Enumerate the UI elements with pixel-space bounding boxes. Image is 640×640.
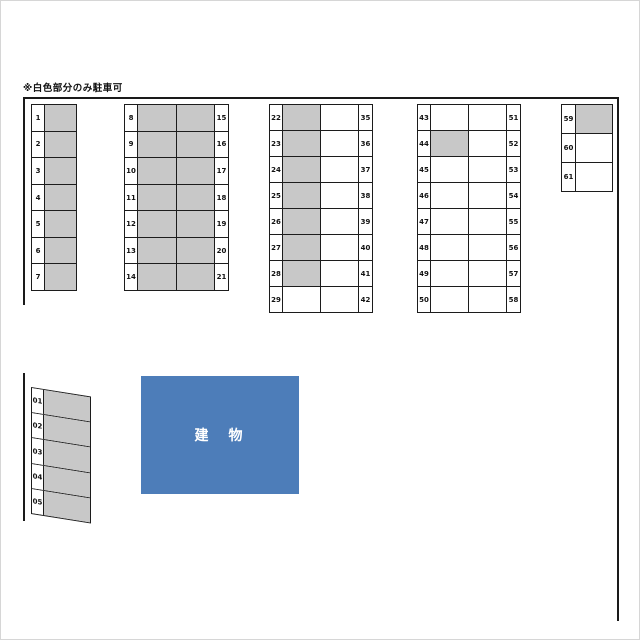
lot-boundary-left-upper <box>23 97 25 305</box>
space-number-label: 40 <box>359 235 372 260</box>
parking-map: ※白色部分のみ駐車可 1234567 815916101711181219132… <box>0 0 640 640</box>
space-row: 2 <box>32 132 76 159</box>
parking-space-unavailable <box>138 211 177 237</box>
space-number-label: 17 <box>215 158 228 184</box>
space-row: 6 <box>32 238 76 265</box>
space-number-label: 38 <box>359 183 372 208</box>
parking-space-available <box>321 157 359 182</box>
lot-boundary-left-lower <box>23 373 25 521</box>
parking-space-available <box>431 105 469 130</box>
parking-space-available <box>469 131 507 156</box>
space-number-label: 53 <box>507 157 520 182</box>
parking-space-unavailable <box>45 238 76 264</box>
space-number-label: 5 <box>32 211 45 237</box>
space-number-label: 56 <box>507 235 520 260</box>
parking-space-unavailable <box>177 185 216 211</box>
space-row: 5 <box>32 211 76 238</box>
space-number-label: 7 <box>32 264 45 290</box>
parking-space-available <box>431 157 469 182</box>
space-number-label: 44 <box>418 131 431 156</box>
space-row: 1017 <box>125 158 228 185</box>
parking-space-unavailable <box>138 158 177 184</box>
space-row: 2841 <box>270 261 372 287</box>
space-number-label: 26 <box>270 209 283 234</box>
parking-space-available <box>321 209 359 234</box>
space-number-label: 61 <box>562 163 576 191</box>
space-row: 916 <box>125 132 228 159</box>
space-number-label: 14 <box>125 264 138 290</box>
parking-space-unavailable <box>177 264 216 290</box>
space-number-label: 27 <box>270 235 283 260</box>
parking-space-available <box>469 209 507 234</box>
space-number-label: 57 <box>507 261 520 286</box>
space-number-label: 13 <box>125 238 138 264</box>
lot-boundary-top <box>23 97 619 99</box>
building-label: 建 物 <box>195 425 246 445</box>
space-row: 815 <box>125 105 228 132</box>
parking-space-available <box>321 183 359 208</box>
space-number-label: 25 <box>270 183 283 208</box>
space-number-label: 28 <box>270 261 283 286</box>
space-row: 2538 <box>270 183 372 209</box>
space-number-label: 16 <box>215 132 228 158</box>
parking-space-unavailable <box>283 183 321 208</box>
parking-block-1: 1234567 <box>31 104 77 291</box>
parking-block-5: 596061 <box>561 104 613 192</box>
parking-space-unavailable <box>177 238 216 264</box>
space-row: 59 <box>562 105 612 134</box>
space-row: 1320 <box>125 238 228 265</box>
space-row: 4957 <box>418 261 520 287</box>
space-number-label: 43 <box>418 105 431 130</box>
parking-space-unavailable <box>45 105 76 131</box>
space-row: 5058 <box>418 287 520 312</box>
parking-space-available <box>576 163 612 191</box>
space-number-label: 3 <box>32 158 45 184</box>
space-row: 3 <box>32 158 76 185</box>
space-row: 4351 <box>418 105 520 131</box>
space-row: 1118 <box>125 185 228 212</box>
space-number-label: 48 <box>418 235 431 260</box>
parking-block-2: 81591610171118121913201421 <box>124 104 229 291</box>
space-row: 2639 <box>270 209 372 235</box>
space-row: 61 <box>562 163 612 191</box>
space-number-label: 36 <box>359 131 372 156</box>
space-row: 7 <box>32 264 76 290</box>
space-number-label: 05 <box>32 489 44 515</box>
space-number-label: 35 <box>359 105 372 130</box>
parking-space-unavailable <box>138 132 177 158</box>
parking-space-unavailable <box>283 105 321 130</box>
space-number-label: 24 <box>270 157 283 182</box>
parking-space-unavailable <box>45 132 76 158</box>
space-row: 4553 <box>418 157 520 183</box>
parking-space-available <box>469 287 507 312</box>
space-number-label: 41 <box>359 261 372 286</box>
space-row: 4856 <box>418 235 520 261</box>
parking-space-unavailable <box>177 158 216 184</box>
parking-space-available <box>321 105 359 130</box>
space-number-label: 9 <box>125 132 138 158</box>
parking-space-available <box>469 183 507 208</box>
parking-space-unavailable <box>138 264 177 290</box>
space-number-label: 60 <box>562 134 576 162</box>
parking-space-unavailable <box>283 209 321 234</box>
parking-space-available <box>469 261 507 286</box>
parking-block-4: 43514452455346544755485649575058 <box>417 104 521 313</box>
space-number-label: 45 <box>418 157 431 182</box>
space-number-label: 02 <box>32 413 44 439</box>
space-number-label: 6 <box>32 238 45 264</box>
space-number-label: 19 <box>215 211 228 237</box>
parking-space-available <box>431 183 469 208</box>
parking-space-available <box>321 235 359 260</box>
space-number-label: 58 <box>507 287 520 312</box>
parking-space-unavailable <box>45 158 76 184</box>
parking-space-available <box>469 157 507 182</box>
space-number-label: 01 <box>32 388 44 414</box>
parking-space-unavailable <box>138 238 177 264</box>
space-row: 1219 <box>125 211 228 238</box>
space-row: 60 <box>562 134 612 163</box>
parking-space-available <box>321 261 359 286</box>
parking-space-available <box>321 131 359 156</box>
space-number-label: 4 <box>32 185 45 211</box>
space-row: 2942 <box>270 287 372 312</box>
parking-space-unavailable <box>283 235 321 260</box>
lot-boundary-right <box>617 97 619 621</box>
space-number-label: 37 <box>359 157 372 182</box>
space-number-label: 10 <box>125 158 138 184</box>
building: 建 物 <box>141 376 299 494</box>
parking-block-6-slanted: 0102030405 <box>31 387 91 524</box>
space-number-label: 21 <box>215 264 228 290</box>
space-number-label: 04 <box>32 464 44 490</box>
space-row: 2336 <box>270 131 372 157</box>
parking-space-available <box>431 235 469 260</box>
space-number-label: 20 <box>215 238 228 264</box>
parking-space-unavailable <box>45 185 76 211</box>
space-row: 4755 <box>418 209 520 235</box>
parking-space-unavailable <box>138 185 177 211</box>
parking-space-unavailable <box>45 264 76 290</box>
space-number-label: 54 <box>507 183 520 208</box>
parking-space-unavailable <box>177 211 216 237</box>
parking-space-available <box>431 287 469 312</box>
parking-space-unavailable <box>576 105 612 133</box>
space-row: 4654 <box>418 183 520 209</box>
space-number-label: 47 <box>418 209 431 234</box>
parking-space-available <box>431 261 469 286</box>
parking-space-available <box>431 209 469 234</box>
space-number-label: 29 <box>270 287 283 312</box>
space-number-label: 39 <box>359 209 372 234</box>
parking-space-unavailable <box>283 261 321 286</box>
space-number-label: 1 <box>32 105 45 131</box>
space-row: 1421 <box>125 264 228 290</box>
space-row: 4 <box>32 185 76 212</box>
space-number-label: 11 <box>125 185 138 211</box>
space-number-label: 23 <box>270 131 283 156</box>
space-number-label: 55 <box>507 209 520 234</box>
space-number-label: 18 <box>215 185 228 211</box>
space-number-label: 12 <box>125 211 138 237</box>
space-row: 2740 <box>270 235 372 261</box>
note-text: ※白色部分のみ駐車可 <box>23 80 123 94</box>
space-number-label: 59 <box>562 105 576 133</box>
space-number-label: 52 <box>507 131 520 156</box>
space-number-label: 22 <box>270 105 283 130</box>
parking-space-unavailable <box>177 132 216 158</box>
space-number-label: 51 <box>507 105 520 130</box>
parking-space-unavailable <box>177 105 216 131</box>
parking-space-available <box>469 105 507 130</box>
parking-space-available <box>321 287 359 312</box>
space-row: 1 <box>32 105 76 132</box>
space-number-label: 15 <box>215 105 228 131</box>
space-number-label: 50 <box>418 287 431 312</box>
space-row: 4452 <box>418 131 520 157</box>
parking-space-unavailable <box>283 131 321 156</box>
space-number-label: 2 <box>32 132 45 158</box>
space-number-label: 42 <box>359 287 372 312</box>
parking-space-unavailable <box>431 131 469 156</box>
parking-space-unavailable <box>283 157 321 182</box>
space-number-label: 03 <box>32 439 44 465</box>
space-number-label: 46 <box>418 183 431 208</box>
parking-block-3: 22352336243725382639274028412942 <box>269 104 373 313</box>
space-number-label: 49 <box>418 261 431 286</box>
parking-space-unavailable <box>45 211 76 237</box>
space-row: 2235 <box>270 105 372 131</box>
parking-space-available <box>283 287 321 312</box>
parking-space-available <box>576 134 612 162</box>
parking-space-unavailable <box>138 105 177 131</box>
space-number-label: 8 <box>125 105 138 131</box>
space-row: 2437 <box>270 157 372 183</box>
parking-space-available <box>469 235 507 260</box>
